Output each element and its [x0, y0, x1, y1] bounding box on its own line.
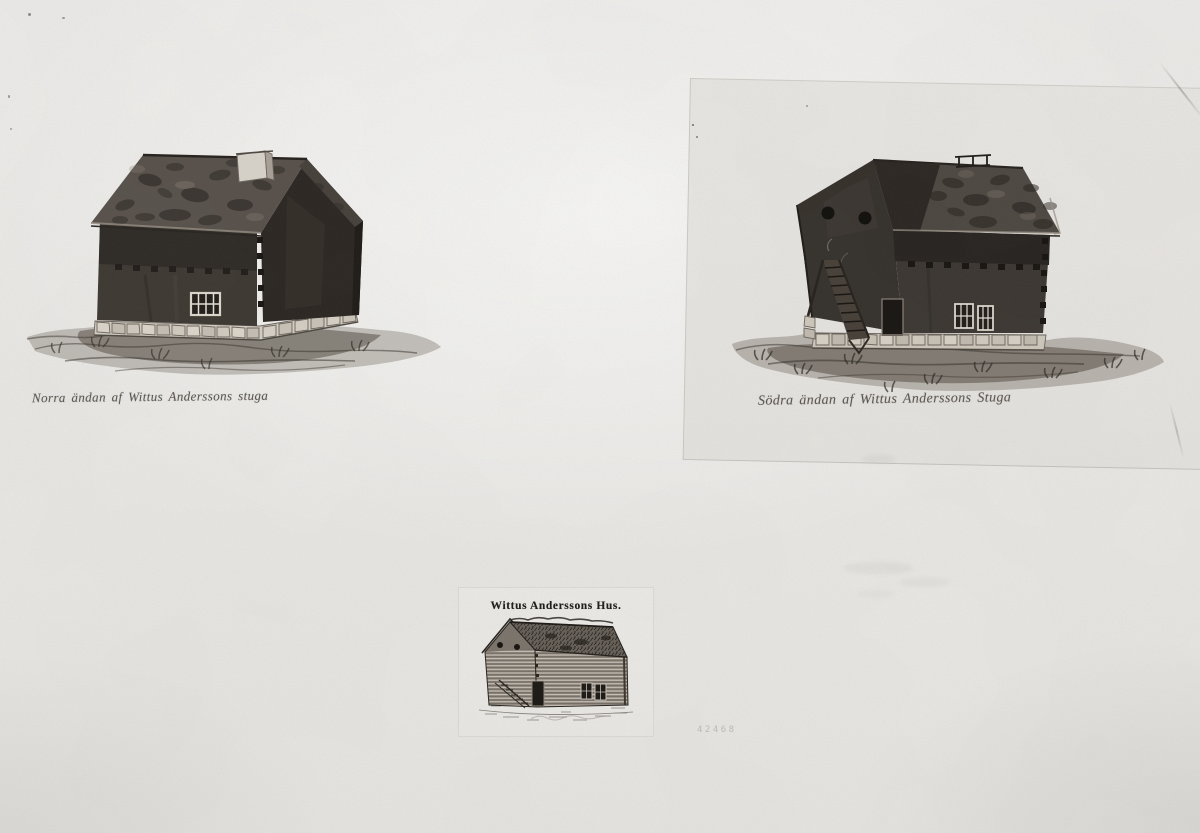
- left-chimney: [236, 151, 274, 182]
- dust-speck: [696, 136, 698, 138]
- dust-speck: [62, 17, 65, 19]
- dust-speck: [10, 128, 12, 130]
- engraving-ground: [479, 706, 633, 720]
- right-window: [955, 304, 973, 328]
- archival-photograph: Norra ändan af Wittus Anderssons stuga S…: [0, 0, 1200, 833]
- right-house-drawing: [728, 138, 1173, 403]
- left-front-wall: [97, 221, 257, 326]
- gable-hole: [859, 212, 872, 225]
- right-door: [882, 299, 903, 335]
- engraving-window: [581, 683, 592, 699]
- left-window: [191, 293, 220, 315]
- engraving-window: [595, 684, 606, 700]
- smudge: [855, 590, 895, 598]
- smudge: [843, 562, 913, 574]
- smudge: [900, 578, 950, 587]
- dust-speck: [8, 95, 10, 98]
- gable-hole: [822, 207, 835, 220]
- dust-speck: [806, 105, 808, 107]
- engraving-title: Wittus Anderssons Hus.: [461, 600, 651, 612]
- engraving-door: [532, 681, 544, 706]
- dust-speck: [28, 13, 31, 16]
- dust-speck: [692, 124, 694, 126]
- left-drawing-caption: Norra ändan af Wittus Anderssons stuga: [32, 389, 268, 406]
- left-house-drawing: [25, 125, 445, 395]
- right-window: [978, 306, 993, 330]
- archive-number: 42468: [697, 725, 737, 735]
